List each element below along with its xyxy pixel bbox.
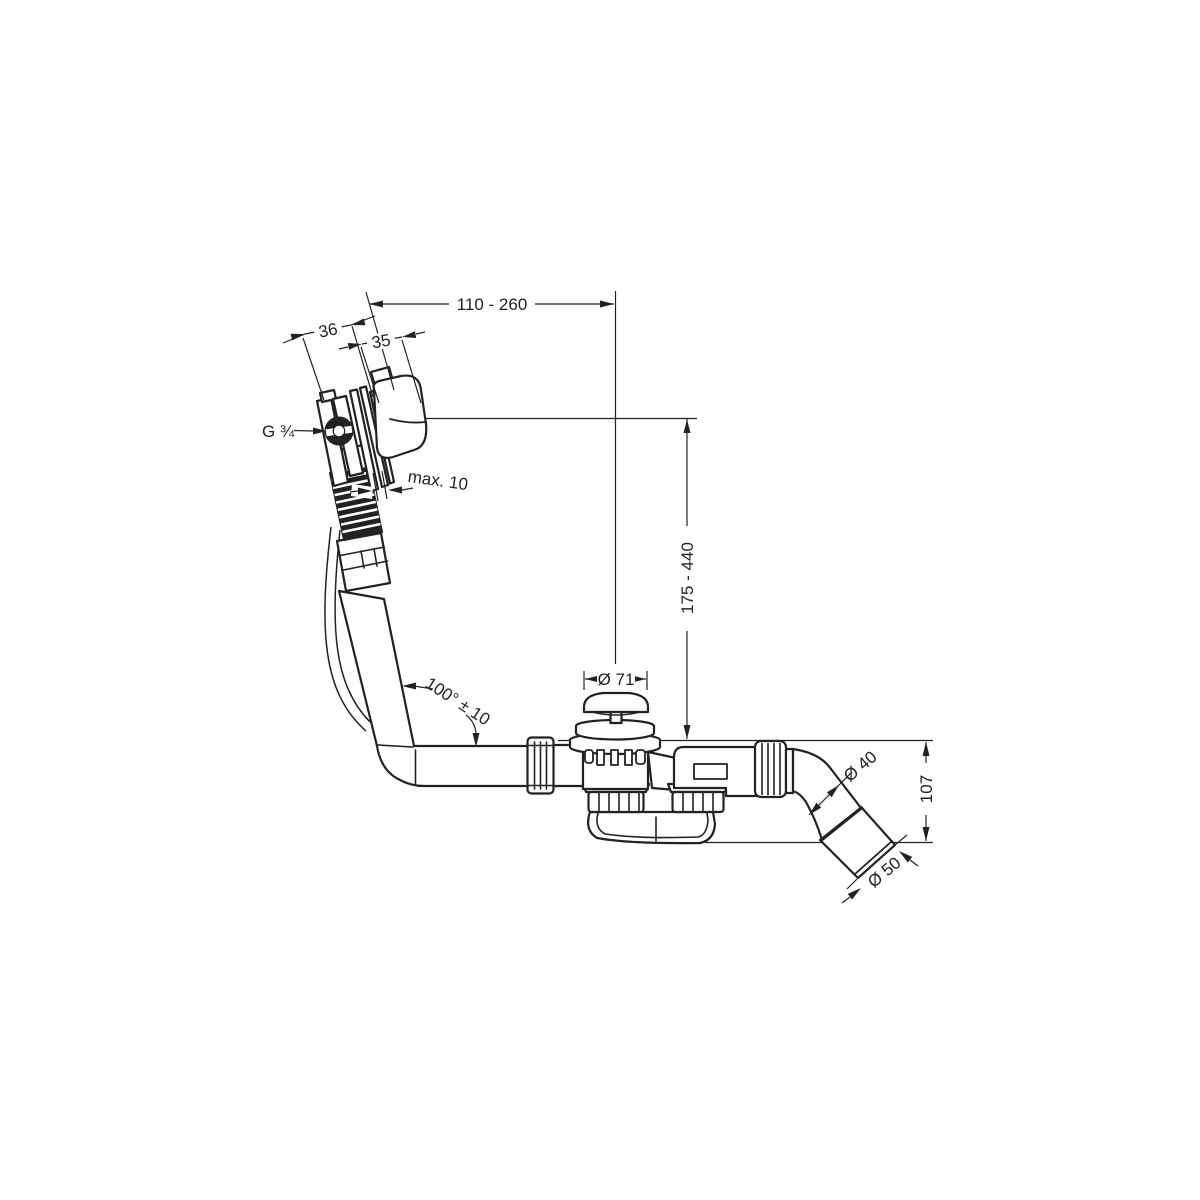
dim-hose-angle-label: 100° ± 10 (422, 674, 493, 730)
trap-bowl (588, 812, 715, 843)
dim-trap-depth: 107 (917, 742, 936, 841)
dim-plug-diameter: Ø 71 (584, 669, 647, 690)
dim-height-range: 175 - 440 (677, 419, 697, 739)
dim-plug-diameter-label: Ø 71 (598, 670, 635, 689)
dim-thread-size-label: G ¾ (262, 422, 295, 441)
g34-inlet-port (326, 418, 353, 445)
port-bore (333, 425, 345, 437)
dim-thread-size: G ¾ (262, 422, 327, 441)
dim-wall-clearance-label: max. 10 (407, 467, 470, 494)
rotary-knob (374, 376, 427, 458)
dim-overflow-body-depth-label: 36 (317, 319, 339, 341)
elbow-boss (694, 764, 727, 779)
dim-escutcheon-depth-label: 35 (370, 330, 392, 352)
dim-width-range-label: 110 - 260 (457, 295, 528, 314)
bath-waste-overflow-technical-drawing: 110 - 260 36 35 (0, 0, 1200, 1200)
pop-up-plug (584, 693, 648, 723)
dim-height-range-label: 175 - 440 (678, 542, 697, 614)
drawing-canvas: 110 - 260 36 35 (0, 0, 1200, 1200)
pipe-union-nut (528, 738, 554, 794)
dim-outlet-pipe-diameter-label: Ø 40 (840, 747, 880, 785)
dim-hose-angle: 100° ± 10 (402, 674, 493, 747)
plug-cap (584, 693, 648, 712)
dim-trap-depth-label: 107 (917, 775, 936, 803)
elbow-ribbed-nut (755, 741, 786, 797)
